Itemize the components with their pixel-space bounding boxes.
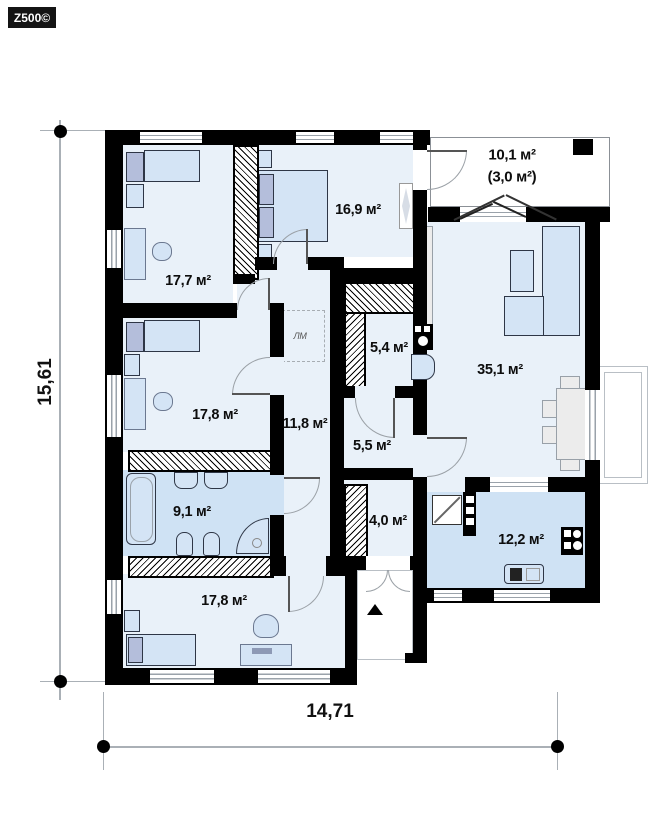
room-label-bathroom: 9,1 м² xyxy=(173,504,211,520)
dim-line-bottom xyxy=(103,746,558,748)
bed xyxy=(144,320,200,352)
shower-drain xyxy=(252,538,262,548)
door-opening xyxy=(270,475,284,515)
corner-sofa-chaise xyxy=(504,296,544,336)
desk xyxy=(124,228,146,280)
wardrobe-hatch xyxy=(128,556,274,578)
wall-entry-west xyxy=(330,480,344,565)
door-leaf xyxy=(288,576,290,612)
desk xyxy=(124,378,146,430)
wall-pantry-bottom xyxy=(330,386,355,398)
dining-chair xyxy=(542,400,557,418)
dining-chair xyxy=(542,426,557,444)
bed-pillow xyxy=(259,207,274,238)
wall-pantry-bottom xyxy=(395,386,415,398)
corner-sofa-back xyxy=(542,226,580,336)
window xyxy=(494,590,550,601)
stove-burner xyxy=(573,541,582,550)
kitchen-sink-board xyxy=(526,568,540,581)
bed-pillow xyxy=(128,637,143,663)
kitchen-shelf xyxy=(466,518,474,525)
stove-burner xyxy=(573,530,581,538)
room-label-hall-small: 5,5 м² xyxy=(353,438,391,454)
room-label-bedroom-bottom: 17,8 м² xyxy=(201,593,247,609)
room-label-living: 35,1 м² xyxy=(477,362,523,378)
wall-16-9-bottom xyxy=(308,257,330,270)
door-opening xyxy=(413,435,427,477)
wall-pantry-top xyxy=(344,268,415,282)
room-label-kitchen: 12,2 м² xyxy=(498,532,544,548)
room-label-bedroom-top-left: 17,7 м² xyxy=(165,273,211,289)
wall-living-kitchen xyxy=(465,477,490,492)
window xyxy=(434,590,462,601)
bed xyxy=(144,150,200,182)
wall-bedroom-divider xyxy=(105,303,237,318)
stove-burner xyxy=(564,542,571,549)
room-label-pantry: 5,4 м² xyxy=(370,340,408,356)
entrance-arrow xyxy=(367,604,383,615)
attic-ladder-label: ЛМ xyxy=(293,331,306,341)
wall-living-kitchen xyxy=(548,477,585,492)
bed-pillow xyxy=(126,152,144,182)
kitchen-shelf xyxy=(466,496,474,503)
window xyxy=(107,580,121,614)
boiler-cell xyxy=(424,326,430,332)
window xyxy=(107,375,121,437)
door-opening xyxy=(286,556,326,576)
door-leaf xyxy=(232,393,270,395)
sink xyxy=(174,472,198,489)
dim-extension-bl xyxy=(103,692,104,770)
dim-dot xyxy=(54,675,67,688)
dim-dot xyxy=(551,740,564,753)
door-opening xyxy=(366,556,410,570)
bathtub-inner xyxy=(130,477,153,542)
desk-items xyxy=(252,648,272,654)
chair xyxy=(152,242,172,261)
boiler-cell xyxy=(418,336,428,346)
wall-porch-left xyxy=(345,570,357,668)
door-opening xyxy=(355,386,395,398)
window xyxy=(296,132,334,143)
window xyxy=(490,479,548,490)
nightstand xyxy=(126,184,144,208)
terrace-pillar xyxy=(573,139,593,155)
wall-column-bath xyxy=(270,395,284,475)
wall-kitchen-west xyxy=(413,190,427,435)
wall-column-bath xyxy=(270,515,284,556)
window xyxy=(380,132,413,143)
shelves-hatch xyxy=(344,312,366,390)
dim-dot xyxy=(97,740,110,753)
dim-height-label: 15,61 xyxy=(35,358,57,406)
door-opening xyxy=(270,357,284,395)
stove-burner xyxy=(564,530,571,537)
bay-window-outline-inner xyxy=(604,372,642,478)
door-leaf xyxy=(427,150,467,152)
stove-icon xyxy=(561,527,583,555)
door-leaf xyxy=(268,278,270,310)
door-leaf xyxy=(393,398,395,438)
wall-porch-step xyxy=(405,653,427,663)
fridge xyxy=(432,495,462,525)
tall-window-diamond xyxy=(402,188,410,224)
dim-width-label: 14,71 xyxy=(306,701,354,723)
nightstand xyxy=(124,354,140,376)
door-opening xyxy=(413,150,427,190)
window xyxy=(258,670,330,683)
kitchen-sink-basin xyxy=(510,568,522,581)
living-passage-floor xyxy=(427,477,465,492)
chair xyxy=(153,392,173,411)
wall-entry-top xyxy=(344,468,415,480)
room-label-bedroom-mid-left: 17,8 м² xyxy=(192,407,238,423)
door-leaf xyxy=(306,229,308,264)
toilet xyxy=(203,532,220,556)
wall-hall-bottom xyxy=(270,556,286,576)
door-leaf xyxy=(427,437,467,439)
wall-porch-top xyxy=(344,556,366,570)
wall-hall-east xyxy=(330,257,344,480)
boiler-cell xyxy=(415,326,421,332)
door-leaf xyxy=(284,477,320,479)
dining-table xyxy=(556,388,586,460)
window xyxy=(107,230,121,268)
sink xyxy=(204,472,228,489)
room-label-entry: 4,0 м² xyxy=(369,513,407,529)
room-label-terrace: 10,1 м² xyxy=(488,147,535,164)
bay-window-opening xyxy=(585,390,600,460)
coffee-table xyxy=(510,250,534,292)
dim-line-left xyxy=(59,120,61,700)
wardrobe-hatch xyxy=(128,450,274,472)
toilet xyxy=(176,532,193,556)
dim-dot xyxy=(54,125,67,138)
room-label-terrace-sub: (3,0 м²) xyxy=(488,169,537,186)
fridge-diagonal xyxy=(434,496,461,523)
window xyxy=(150,670,214,683)
tall-window-niche xyxy=(399,183,413,229)
armchair xyxy=(253,614,279,638)
shelves-hatch xyxy=(344,282,419,314)
nightstand xyxy=(124,610,140,632)
wardrobe-hatch xyxy=(344,484,368,560)
wall-column-bath xyxy=(270,303,284,357)
floor-plan: Z500© 15,61 14,71 xyxy=(0,0,655,839)
wall-sink xyxy=(411,354,435,380)
wall-right xyxy=(585,207,600,390)
dim-extension-br xyxy=(557,692,558,770)
wall-right xyxy=(585,460,600,603)
kitchen-shelf xyxy=(466,507,474,514)
bed-pillow xyxy=(259,174,274,205)
wall-porch-right xyxy=(413,603,427,653)
room-label-bedroom-top-mid: 16,9 м² xyxy=(335,202,381,218)
bed-pillow xyxy=(126,322,144,352)
boiler-icon xyxy=(413,324,433,350)
brand-logo: Z500© xyxy=(8,7,56,28)
wall-kitchen-west xyxy=(413,477,427,590)
room-label-hallway: 11,8 м² xyxy=(283,416,328,432)
window xyxy=(140,132,202,143)
dim-extension-bottom-left xyxy=(40,681,105,682)
